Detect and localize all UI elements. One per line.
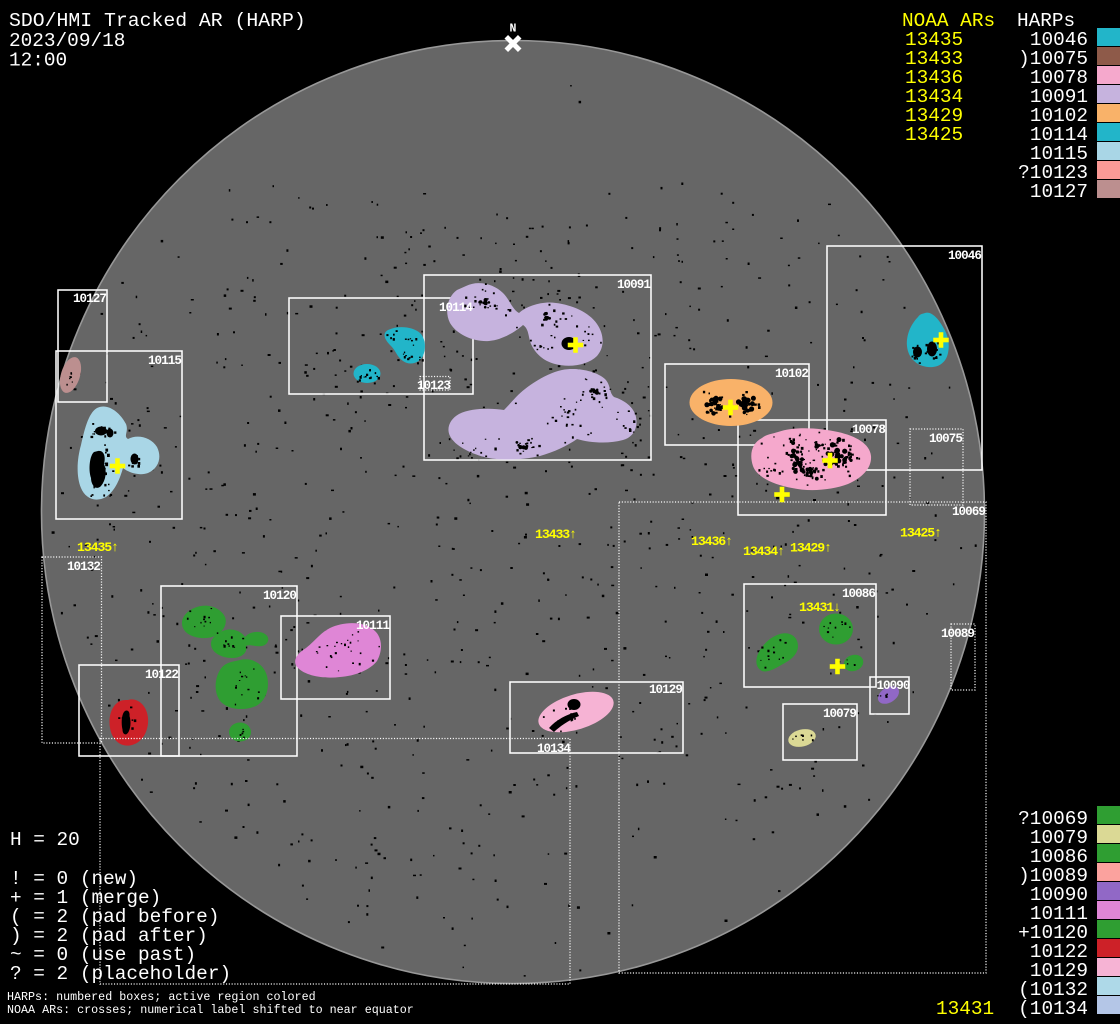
svg-text:10090: 10090: [876, 679, 909, 693]
svg-text:H = 20: H = 20: [10, 829, 80, 851]
svg-text:10115: 10115: [148, 354, 181, 368]
svg-text:12:00: 12:00: [9, 50, 67, 72]
svg-text:10091: 10091: [617, 278, 651, 292]
svg-text:13434↑: 13434↑: [743, 544, 784, 559]
svg-text:10075: 10075: [929, 432, 962, 446]
svg-text:HARPs: numbered boxes; active: HARPs: numbered boxes; active region col…: [7, 990, 316, 1004]
svg-text:(10134: (10134: [1018, 998, 1088, 1020]
svg-text:SDO/HMI Tracked AR (HARP): SDO/HMI Tracked AR (HARP): [9, 10, 306, 32]
svg-text:10078: 10078: [852, 423, 885, 437]
svg-text:10069: 10069: [952, 505, 985, 519]
svg-text:10127: 10127: [1030, 181, 1088, 203]
svg-text:10086: 10086: [842, 587, 875, 601]
svg-text:NOAA ARs: crosses; numerical l: NOAA ARs: crosses; numerical label shift…: [7, 1003, 414, 1017]
svg-text:10127: 10127: [73, 292, 106, 306]
svg-text:10134: 10134: [537, 742, 571, 756]
svg-text:10122: 10122: [145, 668, 178, 682]
svg-text:10102: 10102: [775, 367, 808, 381]
svg-text:10132: 10132: [67, 560, 100, 574]
svg-text:13431↓: 13431↓: [799, 600, 840, 615]
svg-text:13429↑: 13429↑: [790, 541, 831, 556]
svg-text:10114: 10114: [439, 301, 473, 315]
svg-text:10089: 10089: [941, 627, 974, 641]
svg-text:10129: 10129: [649, 683, 682, 697]
svg-text:13436↑: 13436↑: [691, 534, 732, 549]
svg-text:N: N: [510, 23, 517, 36]
svg-text:10123: 10123: [417, 379, 450, 393]
svg-text:10120: 10120: [263, 589, 296, 603]
svg-text:13425↑: 13425↑: [900, 526, 941, 541]
svg-text:10111: 10111: [356, 619, 390, 633]
svg-text:13425: 13425: [905, 124, 963, 146]
svg-text:10046: 10046: [948, 249, 981, 263]
svg-text:10079: 10079: [823, 707, 856, 721]
svg-text:13431: 13431: [936, 998, 994, 1020]
svg-text:? = 2 (placeholder): ? = 2 (placeholder): [10, 963, 231, 985]
svg-text:13433↑: 13433↑: [535, 527, 576, 542]
svg-text:13435↑: 13435↑: [77, 540, 118, 555]
